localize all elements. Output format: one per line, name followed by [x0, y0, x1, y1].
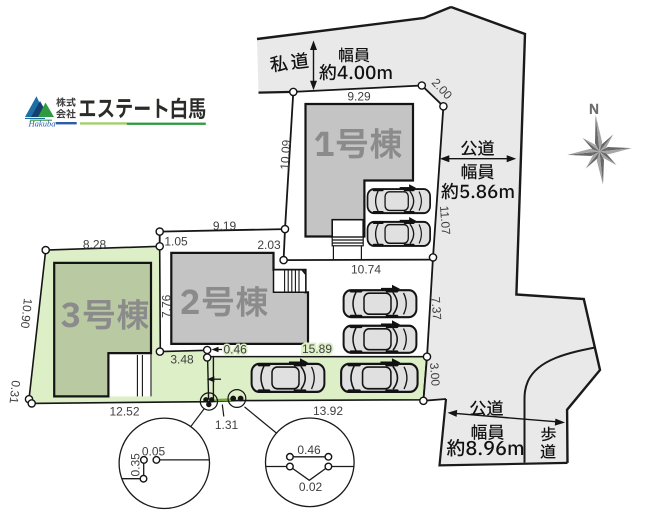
- svg-text:0.05: 0.05: [142, 445, 166, 459]
- svg-text:0.35: 0.35: [129, 453, 143, 477]
- svg-text:10.74: 10.74: [351, 263, 381, 277]
- svg-text:0.31: 0.31: [7, 380, 23, 405]
- svg-text:15.89: 15.89: [302, 342, 332, 356]
- svg-text:10.09: 10.09: [278, 139, 294, 170]
- svg-text:11.07: 11.07: [437, 205, 453, 235]
- svg-text:9.29: 9.29: [347, 90, 371, 104]
- svg-text:0.46: 0.46: [297, 443, 321, 457]
- svg-text:0.46: 0.46: [224, 343, 248, 357]
- svg-text:Hakuba: Hakuba: [28, 119, 56, 129]
- svg-text:2.03: 2.03: [257, 238, 281, 252]
- svg-text:9.19: 9.19: [213, 219, 237, 233]
- svg-text:7.76: 7.76: [160, 294, 174, 318]
- svg-text:3.00: 3.00: [427, 362, 443, 387]
- svg-text:1.31: 1.31: [215, 418, 239, 432]
- svg-text:12.52: 12.52: [109, 405, 139, 419]
- svg-text:13.92: 13.92: [313, 404, 343, 418]
- svg-text:8.28: 8.28: [83, 238, 107, 252]
- svg-text:7.37: 7.37: [429, 296, 445, 321]
- svg-text:1.05: 1.05: [164, 235, 188, 249]
- svg-text:0.02: 0.02: [299, 480, 323, 494]
- svg-text:3.48: 3.48: [170, 353, 194, 367]
